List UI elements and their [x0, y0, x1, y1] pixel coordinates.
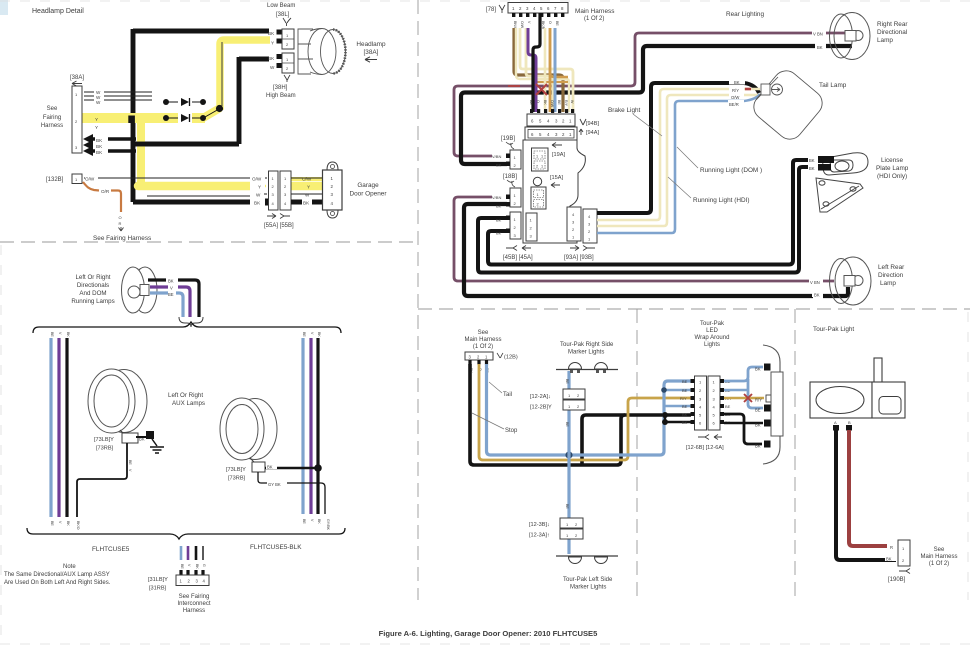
svg-text:BE/R: BE/R [729, 102, 739, 107]
svg-text:Rear Lighting: Rear Lighting [726, 11, 764, 18]
svg-text:V/BN: V/BN [492, 154, 501, 159]
svg-text:The Same Directional/AUX Lamp: The Same Directional/AUX Lamp ASSY [4, 572, 110, 578]
svg-text:Lamp: Lamp [880, 280, 896, 287]
svg-text:O: O [548, 21, 552, 24]
svg-text:BK: BK [268, 31, 275, 36]
svg-text:Running Light (HDI): Running Light (HDI) [693, 197, 749, 204]
svg-text:Tour-Pak: Tour-Pak [700, 321, 725, 327]
svg-text:[19B]: [19B] [501, 136, 515, 142]
svg-text:[12-2A]↓: [12-2A]↓ [530, 394, 551, 400]
svg-text:BE: BE [725, 404, 731, 409]
svg-text:(HDI Only): (HDI Only) [877, 173, 907, 180]
svg-text:Y: Y [271, 41, 274, 46]
svg-text:BK: BK [96, 144, 103, 149]
svg-text:Main Harness: Main Harness [464, 337, 501, 343]
svg-text:R: R [119, 221, 122, 226]
svg-text:BK: BK [303, 201, 310, 206]
svg-text:Tail: Tail [503, 392, 512, 398]
svg-text:V BN: V BN [813, 32, 823, 37]
svg-text:Brake Light: Brake Light [608, 107, 641, 114]
svg-text:BE: BE [557, 100, 561, 105]
svg-text:BE: BE [565, 379, 569, 384]
svg-text:V BN: V BN [810, 280, 820, 285]
svg-text:Lights: Lights [704, 342, 720, 348]
svg-text:[73RB]: [73RB] [96, 446, 114, 452]
svg-text:BK: BK [755, 367, 761, 372]
svg-text:(12B): (12B) [504, 355, 518, 361]
svg-text:Garage: Garage [357, 182, 379, 189]
svg-text:1: 1 [541, 165, 543, 169]
svg-text:BE: BE [302, 519, 306, 524]
svg-text:[38A]: [38A] [364, 49, 379, 56]
svg-text:Marker Lights: Marker Lights [568, 350, 604, 356]
svg-text:R/Y: R/Y [755, 398, 762, 403]
svg-text:BE: BE [555, 21, 559, 26]
svg-text:BK: BK [755, 423, 761, 428]
svg-text:GY BK: GY BK [268, 482, 281, 487]
svg-text:O: O [536, 100, 540, 103]
svg-text:2: 2 [536, 165, 538, 169]
svg-text:[45B] [45A]: [45B] [45A] [503, 255, 533, 261]
svg-text:[73RB]: [73RB] [228, 476, 246, 482]
svg-text:BK: BK [66, 332, 70, 337]
svg-text:BK: BK [809, 158, 815, 163]
svg-text:[78]: [78] [486, 7, 496, 13]
svg-text:FLHTCUSE5: FLHTCUSE5 [92, 546, 130, 553]
svg-text:BE: BE [180, 564, 184, 569]
svg-text:W: W [256, 193, 261, 198]
svg-text:G: G [202, 564, 206, 567]
svg-text:BK: BK [496, 204, 502, 209]
svg-text:BK/O: BK/O [76, 521, 80, 530]
svg-text:See: See [478, 330, 489, 336]
svg-text:BE: BE [682, 379, 688, 384]
svg-text:BK: BK [817, 45, 823, 50]
svg-text:Main Harness: Main Harness [920, 554, 957, 560]
svg-text:Headlamp Detail: Headlamp Detail [32, 8, 84, 15]
svg-text:Are Used On Both Left And Righ: Are Used On Both Left And Right Sides. [4, 580, 111, 586]
svg-text:[38H]: [38H] [273, 85, 288, 91]
svg-text:W: W [305, 193, 310, 198]
svg-text:See Fairing Harness: See Fairing Harness [93, 235, 151, 242]
svg-text:[73LB]Y: [73LB]Y [226, 467, 246, 473]
svg-text:1: 1 [537, 193, 539, 197]
svg-text:Stop: Stop [505, 428, 518, 434]
svg-text:BK: BK [195, 564, 199, 569]
svg-text:BK: BK [267, 465, 273, 470]
svg-text:And DOM: And DOM [79, 290, 106, 297]
svg-text:R: R [890, 545, 893, 550]
svg-text:Directionals: Directionals [77, 282, 109, 289]
svg-text:BE: BE [565, 504, 569, 509]
svg-text:[18B]: [18B] [503, 174, 517, 180]
svg-text:Tail Lamp: Tail Lamp [819, 82, 847, 89]
svg-text:W: W [570, 100, 574, 104]
svg-text:[12-3B]↓: [12-3B]↓ [529, 522, 550, 528]
svg-text:[38A]: [38A] [70, 75, 84, 81]
svg-text:Tour-Pak Right Side: Tour-Pak Right Side [560, 342, 614, 348]
svg-text:Interconnect: Interconnect [177, 601, 210, 607]
svg-text:Harness: Harness [183, 608, 205, 614]
svg-text:Y: Y [95, 117, 98, 122]
svg-text:Wrap Around: Wrap Around [695, 335, 730, 341]
svg-text:(1 Of 2): (1 Of 2) [473, 344, 493, 350]
svg-text:(1 Of 2): (1 Of 2) [929, 561, 949, 567]
svg-text:R/Y: R/Y [732, 88, 739, 93]
svg-text:FLHTCUSE5-BLK: FLHTCUSE5-BLK [250, 544, 302, 551]
svg-text:See: See [47, 106, 58, 112]
svg-text:W: W [96, 100, 101, 105]
svg-text:GY/BK: GY/BK [326, 519, 330, 531]
svg-text:[73LB]Y: [73LB]Y [94, 437, 114, 443]
svg-text:BK: BK [96, 150, 103, 155]
svg-text:R/Y: R/Y [680, 396, 687, 401]
svg-text:Harness: Harness [41, 123, 63, 129]
svg-text:Headlamp: Headlamp [356, 41, 386, 48]
svg-text:Directional: Directional [877, 29, 907, 36]
svg-text:W: W [270, 65, 275, 70]
svg-text:Y: Y [307, 185, 310, 190]
svg-text:A: A [834, 420, 837, 425]
svg-text:[31RB]: [31RB] [149, 586, 167, 592]
svg-text:[12-2B]Y: [12-2B]Y [530, 405, 552, 411]
svg-text:License: License [881, 157, 903, 164]
svg-text:BK: BK [317, 519, 321, 524]
svg-text:BE: BE [682, 388, 688, 393]
svg-text:[12-3A]↑: [12-3A]↑ [529, 533, 550, 539]
svg-text:O/W: O/W [520, 21, 524, 29]
svg-text:BK: BK [543, 100, 547, 105]
svg-text:Left Or Right: Left Or Right [75, 274, 110, 281]
svg-text:BK: BK [268, 56, 275, 61]
svg-text:BK: BK [682, 412, 688, 417]
svg-text:BK: BK [682, 420, 688, 425]
svg-text:[31LB]Y: [31LB]Y [148, 577, 168, 583]
svg-text:BK: BK [317, 332, 321, 337]
svg-text:2: 2 [537, 203, 539, 207]
svg-text:(1 Of 2): (1 Of 2) [584, 16, 604, 22]
svg-text:[190B]: [190B] [888, 577, 906, 583]
svg-text:BE: BE [50, 521, 54, 526]
svg-text:BE: BE [682, 404, 688, 409]
svg-text:Door Opener: Door Opener [350, 191, 388, 198]
svg-text:O/R: O/R [101, 189, 110, 194]
svg-text:O/W: O/W [731, 95, 739, 100]
svg-text:BK: BK [755, 444, 761, 449]
svg-text:[15A]: [15A] [550, 175, 564, 181]
svg-text:BK: BK [809, 166, 815, 171]
svg-text:Low Beam: Low Beam [267, 3, 295, 9]
svg-text:Right Rear: Right Rear [877, 21, 908, 28]
svg-text:O/W: O/W [85, 177, 95, 182]
svg-text:Left Or Right: Left Or Right [168, 392, 203, 399]
svg-text:BE: BE [529, 100, 533, 105]
svg-text:1: 1 [536, 155, 538, 159]
svg-text:BE: BE [302, 332, 306, 337]
svg-text:Left Rear: Left Rear [878, 264, 905, 271]
svg-text:V: V [170, 286, 173, 291]
svg-text:[12-6B] [12-6A]: [12-6B] [12-6A] [686, 445, 724, 451]
svg-text:Marker Lights: Marker Lights [570, 585, 606, 591]
svg-text:BK: BK [496, 163, 502, 168]
svg-text:B: B [848, 420, 851, 425]
svg-text:[94A]: [94A] [586, 130, 600, 136]
svg-text:Fairing: Fairing [43, 115, 61, 121]
svg-text:[93A] [93B]: [93A] [93B] [564, 255, 594, 261]
svg-text:BE: BE [168, 292, 174, 297]
svg-text:O/W: O/W [252, 177, 262, 182]
svg-text:BE: BE [128, 460, 132, 465]
svg-text:BE: BE [565, 422, 569, 427]
svg-text:BK: BK [96, 138, 103, 143]
svg-text:High Beam: High Beam [266, 93, 296, 99]
svg-text:Lamp: Lamp [877, 37, 893, 44]
svg-text:Main Harness: Main Harness [575, 8, 614, 15]
svg-text:O/W: O/W [550, 100, 554, 108]
svg-text:BK: BK [814, 293, 820, 298]
svg-text:LED: LED [706, 328, 718, 334]
svg-text:BK: BK [496, 218, 502, 223]
svg-text:BK: BK [496, 231, 502, 236]
svg-text:Y: Y [258, 185, 261, 190]
svg-text:Tour-Pak Left Side: Tour-Pak Left Side [563, 577, 613, 583]
svg-text:V/BN: V/BN [492, 195, 501, 200]
svg-text:Y: Y [95, 125, 98, 130]
svg-text:R/Y: R/Y [564, 100, 568, 107]
svg-text:1: 1 [541, 155, 543, 159]
svg-text:BE: BE [755, 408, 761, 413]
svg-text:[38L]: [38L] [276, 12, 290, 18]
svg-text:Figure A-6. Lighting, Garage D: Figure A-6. Lighting, Garage Door Opener… [379, 629, 598, 638]
svg-text:AUX Lamps: AUX Lamps [172, 400, 205, 407]
svg-text:Plate Lamp: Plate Lamp [876, 165, 909, 172]
svg-text:BK: BK [66, 521, 70, 526]
svg-text:See Fairing: See Fairing [179, 594, 210, 600]
svg-text:O: O [119, 215, 122, 220]
svg-text:O/W: O/W [302, 177, 312, 182]
svg-text:Tour-Pak Light: Tour-Pak Light [813, 326, 854, 333]
svg-text:[94B]: [94B] [586, 121, 600, 127]
svg-text:BK: BK [168, 279, 174, 284]
svg-text:[19A]: [19A] [552, 152, 566, 158]
svg-text:[55A] [55B]: [55A] [55B] [264, 223, 294, 229]
svg-text:[132B]: [132B] [46, 177, 64, 183]
svg-text:BK: BK [886, 557, 892, 562]
svg-text:See: See [934, 547, 945, 553]
svg-text:BE: BE [50, 332, 54, 337]
svg-text:Running Lamps: Running Lamps [71, 298, 114, 305]
svg-text:BK: BK [734, 80, 740, 85]
svg-text:Direction: Direction [878, 272, 904, 279]
svg-text:BK: BK [254, 201, 261, 206]
svg-text:Running Light (DOM ): Running Light (DOM ) [700, 167, 762, 174]
svg-text:Note: Note [63, 564, 76, 570]
